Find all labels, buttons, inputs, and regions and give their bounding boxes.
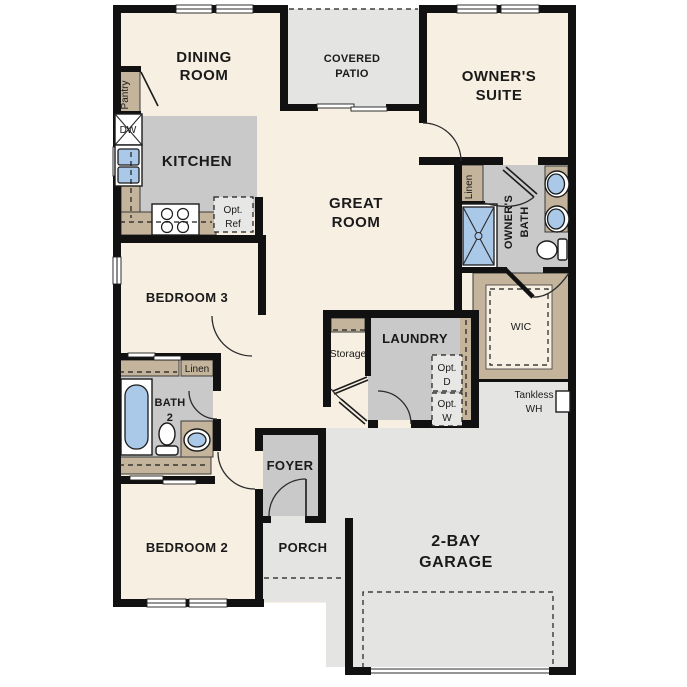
foyer-label: FOYER — [267, 458, 314, 473]
stove — [152, 204, 199, 235]
owners-toilet — [537, 239, 567, 260]
bedroom2-label: BEDROOM 2 — [146, 540, 228, 555]
garage-floor-upper — [470, 382, 568, 428]
garage-door-opening — [371, 667, 549, 675]
shower — [460, 204, 497, 268]
laundry-label: LAUNDRY — [382, 331, 448, 346]
pantry-label: Pantry — [120, 81, 131, 110]
floor-plan: DININGROOM COVEREDPATIO OWNER'SSUITE KIT… — [0, 0, 687, 687]
kitchen-sink — [115, 145, 142, 186]
bedroom2-door-opening — [255, 451, 263, 489]
hall-linen-label: Linen — [185, 364, 209, 375]
owners-bath-label-line2: BATH — [519, 207, 531, 238]
floor-plan-page: DININGROOM COVEREDPATIO OWNER'SSUITE KIT… — [0, 0, 687, 687]
owners-bath-label-line1: OWNER'S — [503, 195, 515, 249]
porch-floor — [263, 523, 345, 602]
tankless-water-heater — [556, 391, 570, 412]
bath2-sink — [184, 429, 210, 451]
storage-label: Storage — [330, 348, 367, 360]
porch-label: PORCH — [279, 540, 328, 555]
owners-linen-label: Linen — [464, 175, 475, 199]
dining-label: DININGROOM — [176, 49, 232, 84]
bedroom3-label: BEDROOM 3 — [146, 290, 228, 305]
bathtub — [125, 385, 148, 449]
bedroom3-closet — [117, 360, 179, 376]
kitchen-label: KITCHEN — [162, 153, 232, 170]
dishwasher-label: DW — [120, 125, 137, 136]
front-door-opening — [271, 516, 305, 523]
wic-label: WIC — [511, 321, 532, 333]
